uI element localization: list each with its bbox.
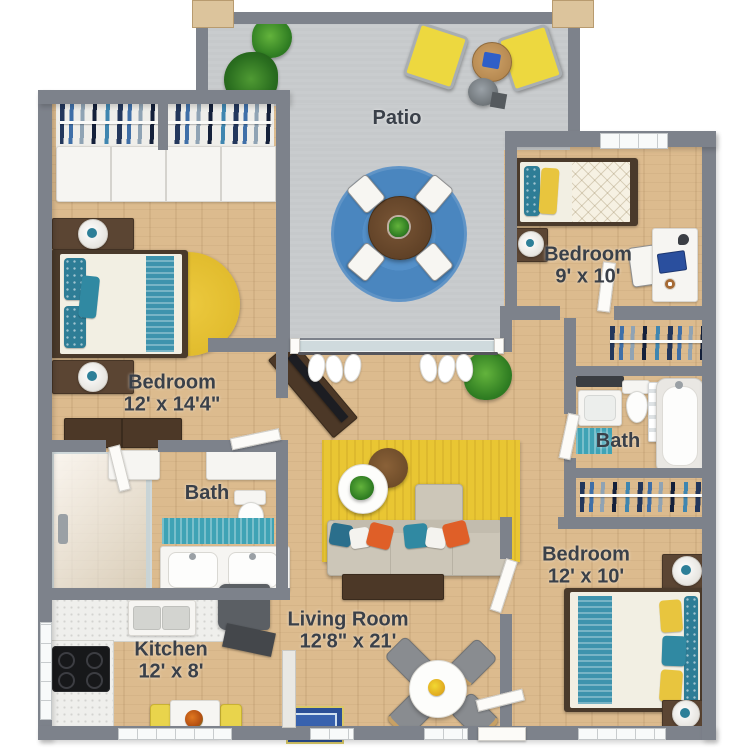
patio-wall	[568, 12, 580, 140]
lamp-finial	[681, 565, 691, 575]
tub-faucet	[675, 381, 683, 389]
lamp-finial	[680, 708, 690, 718]
hanging-clothes	[580, 482, 702, 512]
wall	[500, 614, 512, 726]
wall	[505, 306, 560, 320]
bathtub-basin	[662, 386, 698, 466]
room-name: Bedroom	[544, 244, 632, 266]
sink-basin	[162, 606, 190, 630]
wall	[500, 517, 512, 559]
bed-pillow	[538, 167, 559, 214]
bed-pillow	[659, 599, 683, 632]
towel-on-table	[482, 52, 501, 70]
faucet	[189, 553, 196, 560]
bed-pillow	[524, 166, 540, 216]
bed-pillow-strip	[684, 596, 698, 704]
wall	[38, 440, 106, 452]
wall	[558, 517, 716, 529]
room-dimensions: 12'8" x 21'	[287, 631, 408, 653]
lamp-finial	[87, 371, 97, 381]
wall	[576, 468, 702, 478]
exterior-white-area	[572, 0, 750, 131]
hanging-clothes	[610, 326, 702, 360]
room-label-bath-left: Bath	[185, 483, 229, 505]
bath-mat	[162, 518, 274, 544]
mug	[664, 278, 676, 290]
entry-threshold	[478, 727, 526, 741]
duvet-diamond-pattern	[572, 162, 630, 222]
sink-basin	[133, 606, 161, 630]
closet-rod	[610, 340, 702, 343]
sliding-glass-door	[296, 340, 498, 352]
window	[310, 728, 354, 740]
room-label-master-bedroom: Bedroom 12' x 14'4"	[124, 372, 221, 415]
wall	[702, 131, 716, 740]
room-label-bath-right: Bath	[596, 431, 640, 453]
room-label-kitchen: Kitchen 12' x 8'	[134, 639, 207, 682]
wall	[276, 440, 288, 592]
burner	[58, 652, 75, 669]
burner	[58, 672, 75, 689]
room-label-bedroom-right: Bedroom 12' x 10'	[542, 544, 630, 587]
closet-rod	[580, 494, 702, 497]
wall	[276, 102, 290, 350]
burner	[86, 652, 103, 669]
floor-plan: Patio Bedroom 12' x 14'4" Bedroom 9' x 1…	[0, 0, 750, 750]
room-label-patio: Patio	[373, 108, 422, 130]
bed-runner	[578, 596, 612, 704]
room-name: Kitchen	[134, 639, 207, 661]
pergola-post	[552, 0, 594, 28]
desk-lamp	[678, 234, 689, 245]
patio-wall	[196, 12, 580, 24]
wall	[38, 588, 290, 600]
room-dimensions: 12' x 8'	[134, 661, 207, 683]
room-name: Living Room	[287, 609, 408, 631]
room-name: Bath	[185, 483, 229, 505]
wall	[276, 350, 288, 398]
room-dimensions: 12' x 14'4"	[124, 394, 221, 416]
room-name: Patio	[373, 108, 422, 130]
vanity-mirror-shelf	[576, 376, 624, 387]
kitchen-half-wall	[282, 650, 296, 728]
room-dimensions: 12' x 10'	[542, 566, 630, 588]
burner	[86, 672, 103, 689]
room-name: Bath	[596, 431, 640, 453]
shower-head	[58, 514, 68, 544]
room-dimensions: 9' x 10'	[544, 266, 632, 288]
closet-divider-wall	[158, 90, 168, 150]
room-label-bedroom-small: Bedroom 9' x 10'	[544, 244, 632, 287]
wall	[505, 145, 517, 313]
window	[600, 133, 668, 149]
wall	[614, 306, 716, 320]
window	[40, 622, 52, 720]
bed-pillow	[659, 669, 683, 702]
lamp-finial	[526, 239, 534, 247]
closet-dressers	[56, 146, 278, 202]
room-label-living-room: Living Room 12'8" x 21'	[287, 609, 408, 652]
bed-runner	[146, 256, 174, 352]
grill-shelf	[490, 92, 507, 109]
fruit-plate	[428, 679, 445, 696]
window	[118, 728, 232, 740]
room-name: Bedroom	[124, 372, 221, 394]
wall	[564, 318, 576, 414]
console-table	[342, 574, 444, 600]
room-name: Bedroom	[542, 544, 630, 566]
wall	[564, 458, 576, 520]
pergola-post	[192, 0, 234, 28]
laptop	[657, 250, 688, 274]
sink-basin	[584, 395, 616, 421]
window	[578, 728, 666, 740]
lamp-finial	[87, 228, 97, 238]
window	[424, 728, 468, 740]
faucet	[249, 553, 256, 560]
wall	[576, 366, 702, 376]
accent-pillow	[661, 636, 686, 667]
